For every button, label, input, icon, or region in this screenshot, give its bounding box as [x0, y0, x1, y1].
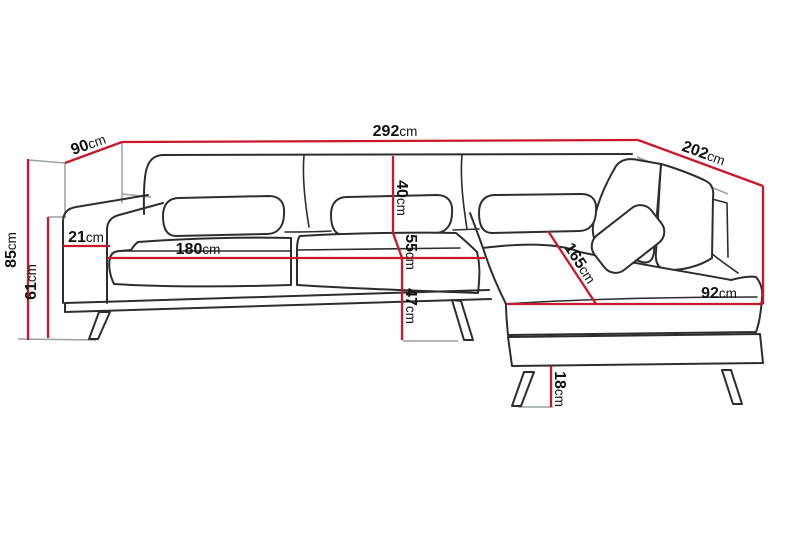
chaise-leg-left: [512, 372, 534, 406]
corner-back-panel: [711, 199, 738, 273]
helper-top-left-tick: [28, 160, 65, 163]
sofa-dimension-diagram: 292cm 90cm 202cm 85cm 61cm 21cm 180cm 40…: [0, 0, 800, 533]
sofa-drawing: [63, 154, 763, 406]
lumbar-pillow-1: [163, 196, 284, 236]
dim-line-total-width: [122, 140, 638, 142]
front-leg-right: [452, 300, 473, 340]
dimension-label-seat-width: 180cm: [176, 241, 221, 258]
lumbar-pillow-2: [331, 195, 452, 235]
chaise-base: [508, 334, 763, 366]
dimension-label-armrest-width: 21cm: [68, 229, 104, 246]
dimension-label-backrest-height: 40cm: [393, 180, 410, 216]
backrest-division-1: [303, 155, 309, 227]
dimension-label-seat-height: 47cm: [402, 288, 419, 324]
seat-cushion-2: [297, 233, 479, 293]
dimension-label-armrest-height: 61cm: [23, 264, 40, 300]
diagram-svg: 292cm 90cm 202cm 85cm 61cm 21cm 180cm 40…: [0, 0, 800, 533]
corner-back-cushion-right: [656, 164, 713, 270]
base-rail: [65, 290, 491, 312]
dimension-label-overall-height: 85cm: [3, 232, 20, 268]
helper-floor-left: [18, 339, 96, 340]
dimension-label-leg-height: 18cm: [551, 371, 568, 407]
lumbar-pillow-3: [479, 194, 596, 233]
dimension-label-seat-depth: 55cm: [402, 234, 419, 270]
dimension-label-total-width: 292cm: [373, 123, 418, 140]
dimension-label-chaise-width: 92cm: [701, 285, 737, 302]
backrest-bottom-gap-1: [285, 231, 331, 232]
chaise-leg-right: [722, 370, 742, 404]
backrest-division-2: [461, 154, 467, 229]
front-leg-left: [89, 312, 110, 339]
